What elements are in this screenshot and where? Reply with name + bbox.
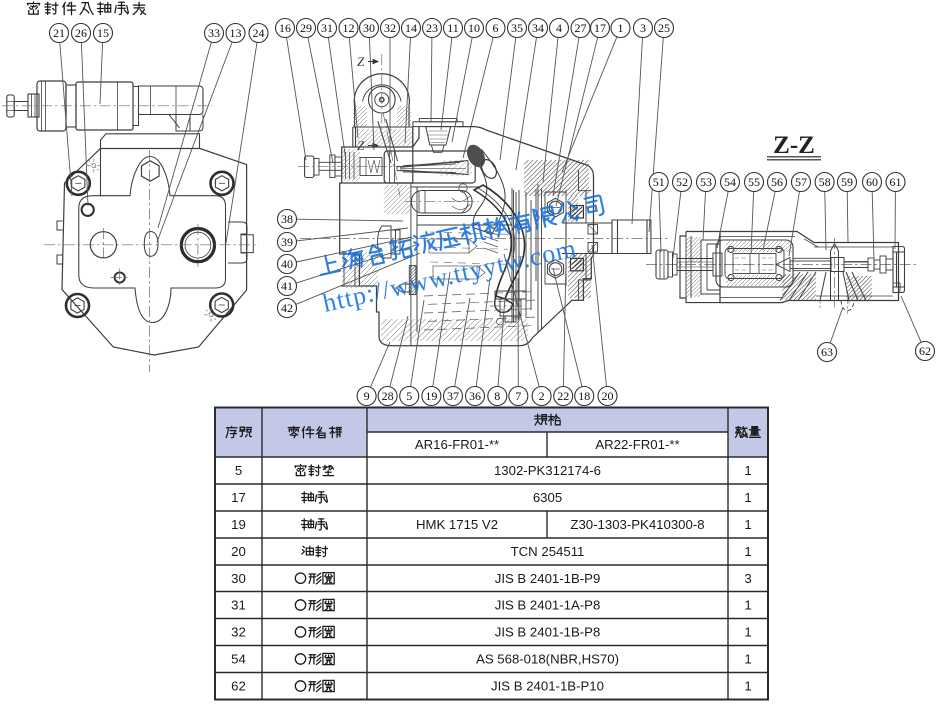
svg-text:23: 23 [426, 21, 438, 35]
svg-text:27: 27 [575, 21, 587, 35]
svg-text:Z-Z: Z-Z [773, 132, 815, 159]
svg-text:17: 17 [594, 21, 606, 35]
svg-text:3: 3 [744, 571, 751, 586]
svg-text:1: 1 [744, 679, 751, 694]
svg-text:58: 58 [819, 175, 831, 189]
svg-text:22: 22 [557, 389, 569, 403]
svg-text:1302-PK312174-6: 1302-PK312174-6 [494, 463, 601, 478]
svg-text:29: 29 [300, 21, 312, 35]
svg-text:18: 18 [578, 389, 590, 403]
svg-text:36: 36 [469, 389, 481, 403]
svg-text:1: 1 [744, 463, 751, 478]
svg-text:14: 14 [405, 21, 417, 35]
svg-text:JIS B 2401-1B-P9: JIS B 2401-1B-P9 [495, 571, 601, 586]
svg-text:40: 40 [281, 257, 293, 271]
svg-text:6: 6 [493, 21, 499, 35]
svg-text:28: 28 [382, 389, 394, 403]
svg-text:2: 2 [539, 389, 545, 403]
svg-text:8: 8 [494, 389, 500, 403]
svg-text:11: 11 [447, 21, 459, 35]
svg-text:HMK 1715 V2: HMK 1715 V2 [416, 517, 498, 532]
svg-text:62: 62 [231, 679, 246, 694]
svg-text:1: 1 [744, 517, 751, 532]
svg-text:19: 19 [425, 389, 437, 403]
svg-text:62: 62 [919, 344, 931, 358]
svg-text:JIS B 2401-1B-P8: JIS B 2401-1B-P8 [495, 625, 601, 640]
svg-text:51: 51 [653, 175, 665, 189]
svg-text:42: 42 [281, 301, 293, 315]
svg-text:1: 1 [744, 652, 751, 667]
svg-text:1: 1 [618, 21, 624, 35]
svg-text:JIS B 2401-1A-P8: JIS B 2401-1A-P8 [495, 598, 601, 613]
svg-text:32: 32 [231, 625, 246, 640]
svg-text:63: 63 [821, 345, 833, 359]
svg-text:60: 60 [866, 175, 878, 189]
svg-text:20: 20 [231, 544, 246, 559]
svg-text:AS 568-018(NBR,HS70): AS 568-018(NBR,HS70) [476, 652, 619, 667]
svg-text:56: 56 [771, 175, 783, 189]
svg-text:AR16-FR01-**: AR16-FR01-** [415, 437, 499, 452]
svg-text:31: 31 [231, 598, 246, 613]
svg-text:6305: 6305 [533, 490, 562, 505]
svg-text:3: 3 [640, 21, 646, 35]
svg-text:53: 53 [700, 175, 712, 189]
svg-text:34: 34 [532, 21, 544, 35]
svg-text:JIS B 2401-1B-P10: JIS B 2401-1B-P10 [491, 679, 604, 694]
svg-text:26: 26 [75, 26, 87, 40]
svg-text:30: 30 [231, 571, 246, 586]
svg-text:57: 57 [795, 175, 807, 189]
svg-text:10: 10 [468, 21, 480, 35]
svg-text:1: 1 [744, 490, 751, 505]
svg-text:31: 31 [321, 21, 333, 35]
svg-text:41: 41 [281, 279, 293, 293]
svg-text:7: 7 [515, 389, 521, 403]
svg-text:4: 4 [556, 21, 562, 35]
svg-text:54: 54 [724, 175, 736, 189]
svg-text:19: 19 [231, 517, 246, 532]
svg-text:35: 35 [511, 21, 523, 35]
svg-text:30: 30 [363, 21, 375, 35]
svg-text:AR22-FR01-**: AR22-FR01-** [595, 437, 679, 452]
svg-text:39: 39 [281, 235, 293, 249]
svg-text:55: 55 [748, 175, 760, 189]
svg-text:16: 16 [279, 21, 291, 35]
svg-text:Z: Z [357, 138, 365, 153]
svg-text:1: 1 [744, 598, 751, 613]
svg-text:Z: Z [357, 54, 365, 69]
svg-text:24: 24 [253, 26, 265, 40]
svg-text:17: 17 [231, 490, 246, 505]
svg-text:38: 38 [281, 212, 293, 226]
svg-text:9: 9 [364, 389, 370, 403]
svg-text:Z30-1303-PK410300-8: Z30-1303-PK410300-8 [570, 517, 704, 532]
svg-text:5: 5 [406, 389, 412, 403]
svg-text:52: 52 [676, 175, 688, 189]
svg-text:13: 13 [230, 26, 242, 40]
svg-text:21: 21 [53, 26, 65, 40]
svg-text:54: 54 [231, 652, 246, 667]
svg-text:20: 20 [602, 389, 614, 403]
svg-text:61: 61 [890, 175, 902, 189]
svg-text:33: 33 [208, 26, 220, 40]
svg-text:37: 37 [447, 389, 459, 403]
svg-text:TCN 254511: TCN 254511 [511, 544, 585, 559]
svg-text:5: 5 [235, 463, 242, 478]
svg-text:15: 15 [97, 26, 109, 40]
svg-text:25: 25 [658, 21, 670, 35]
svg-text:12: 12 [343, 21, 355, 35]
svg-text:1: 1 [744, 544, 751, 559]
svg-text:32: 32 [384, 21, 396, 35]
svg-text:59: 59 [841, 175, 853, 189]
svg-text:1: 1 [744, 625, 751, 640]
